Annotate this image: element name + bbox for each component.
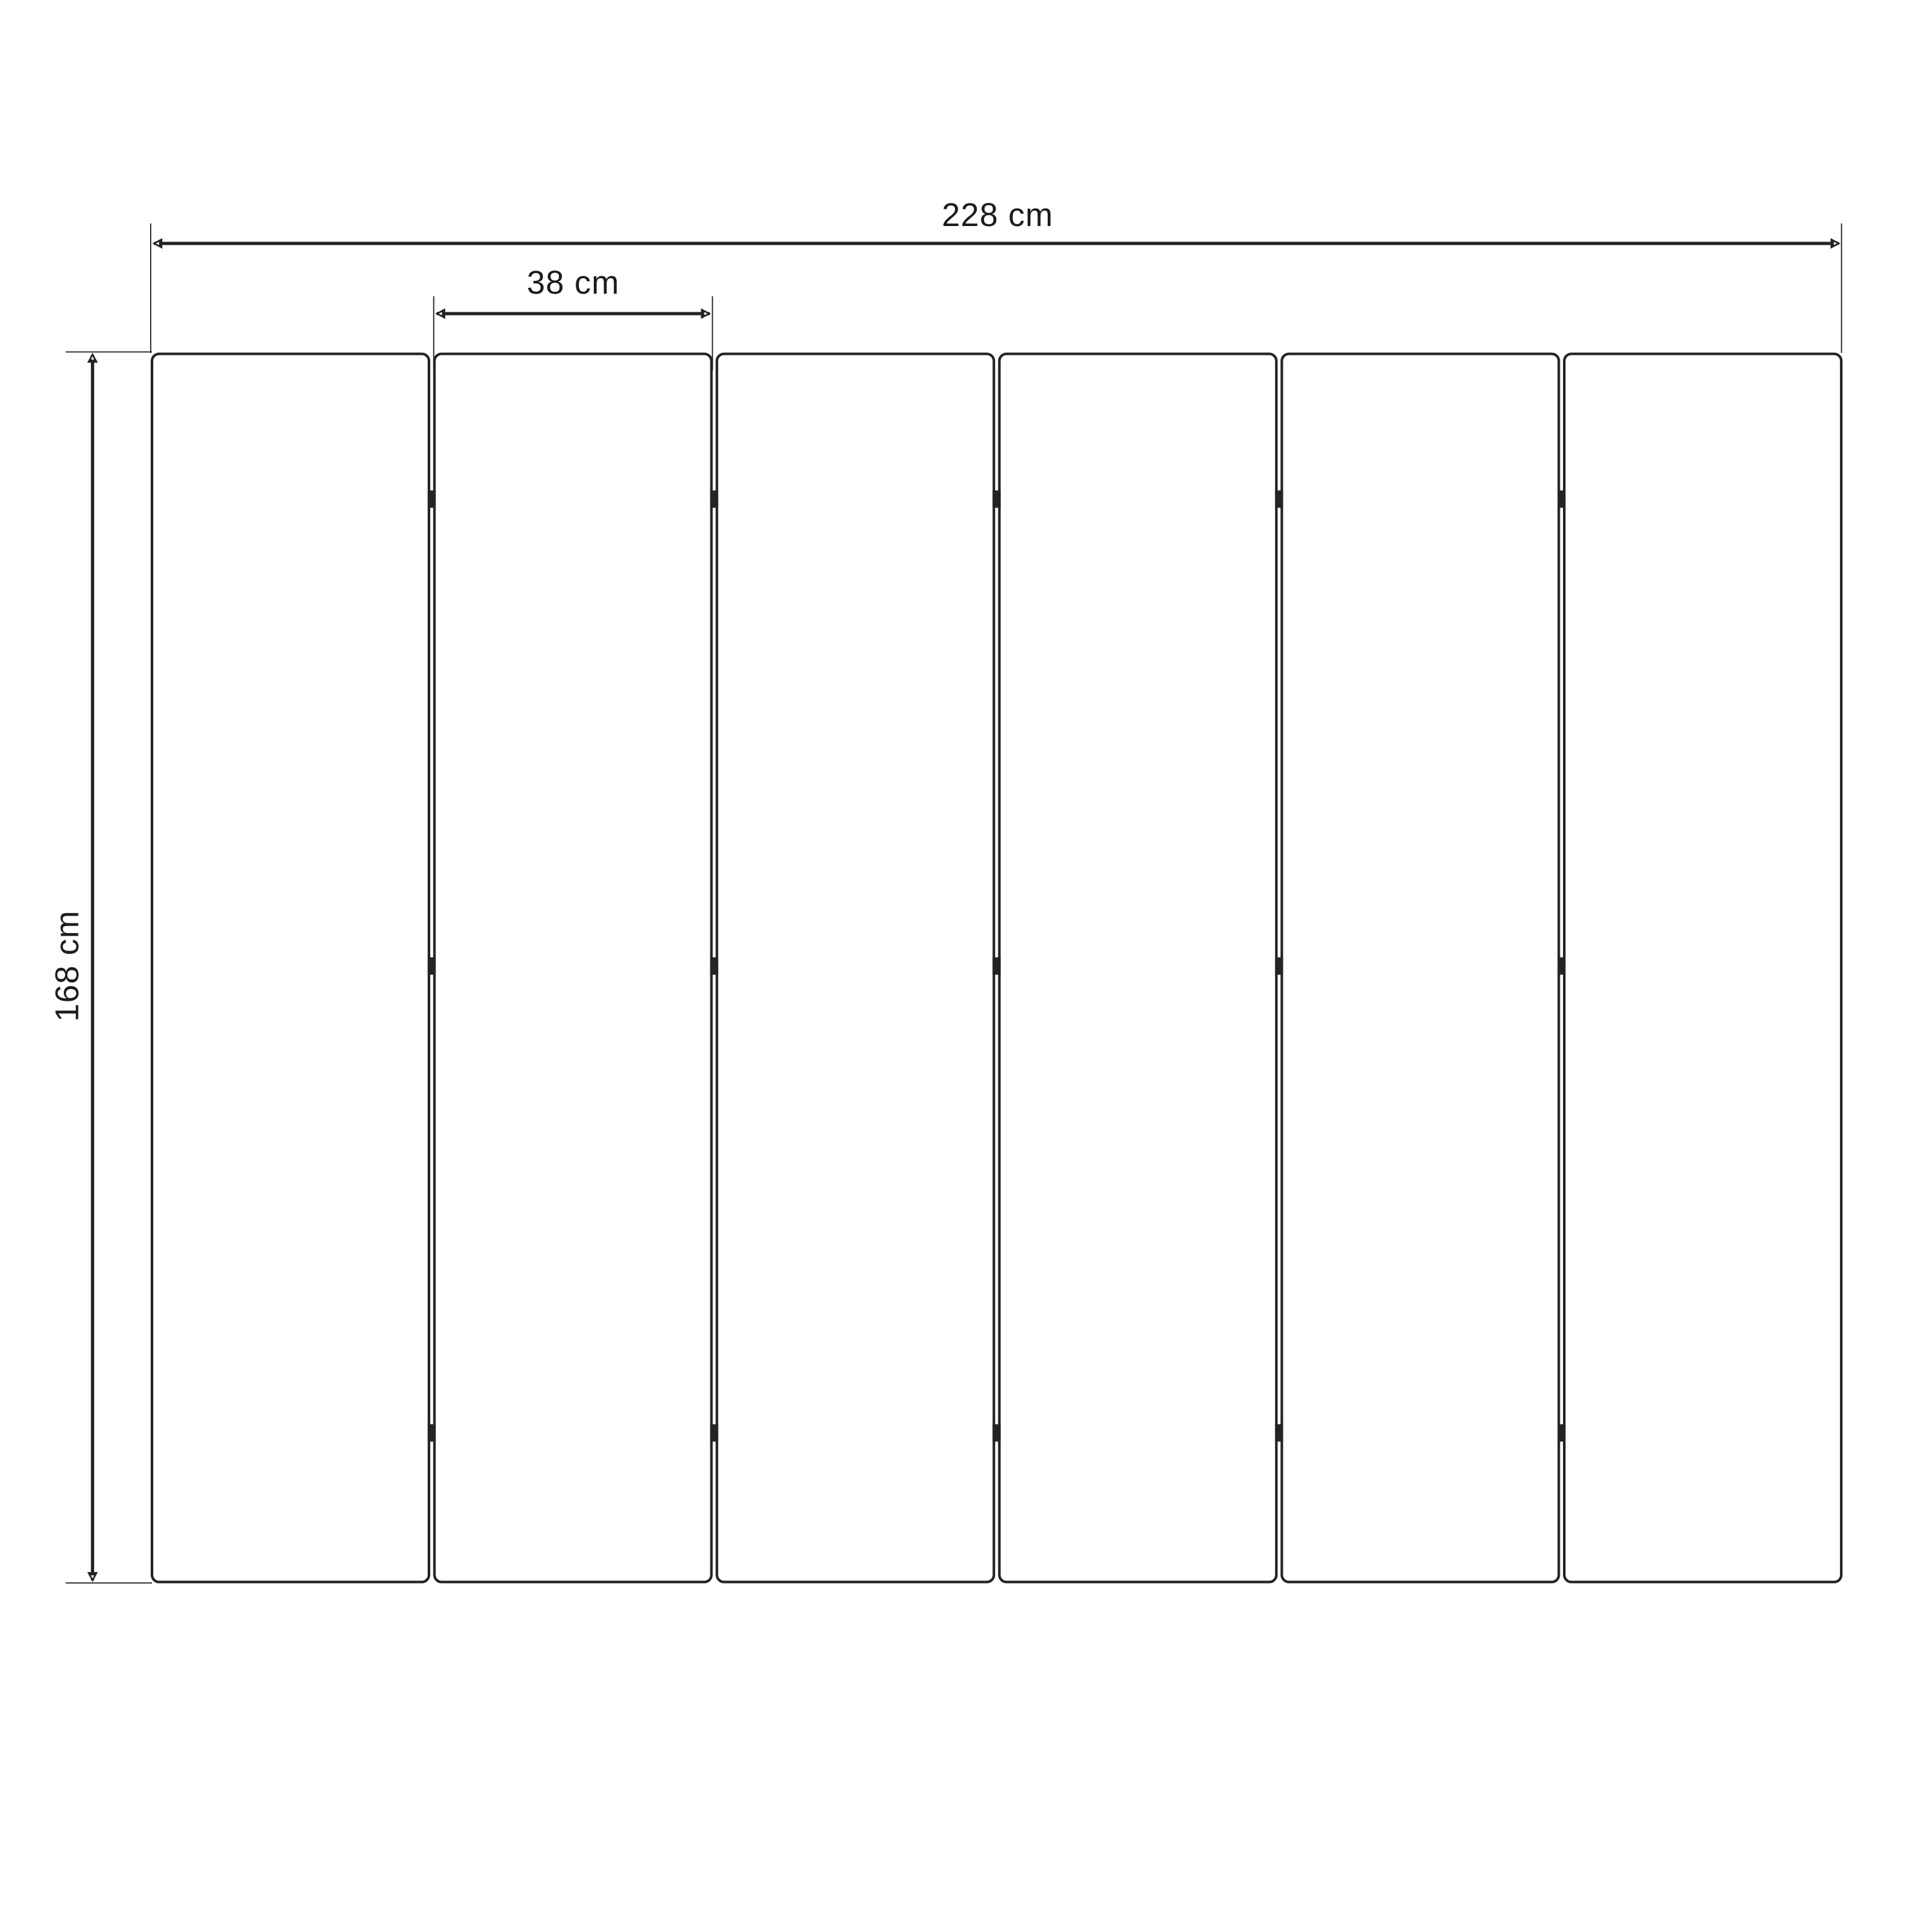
svg-text:228 cm: 228 cm bbox=[942, 196, 1053, 233]
svg-text:168 cm: 168 cm bbox=[49, 910, 86, 1021]
svg-text:38 cm: 38 cm bbox=[527, 264, 620, 301]
